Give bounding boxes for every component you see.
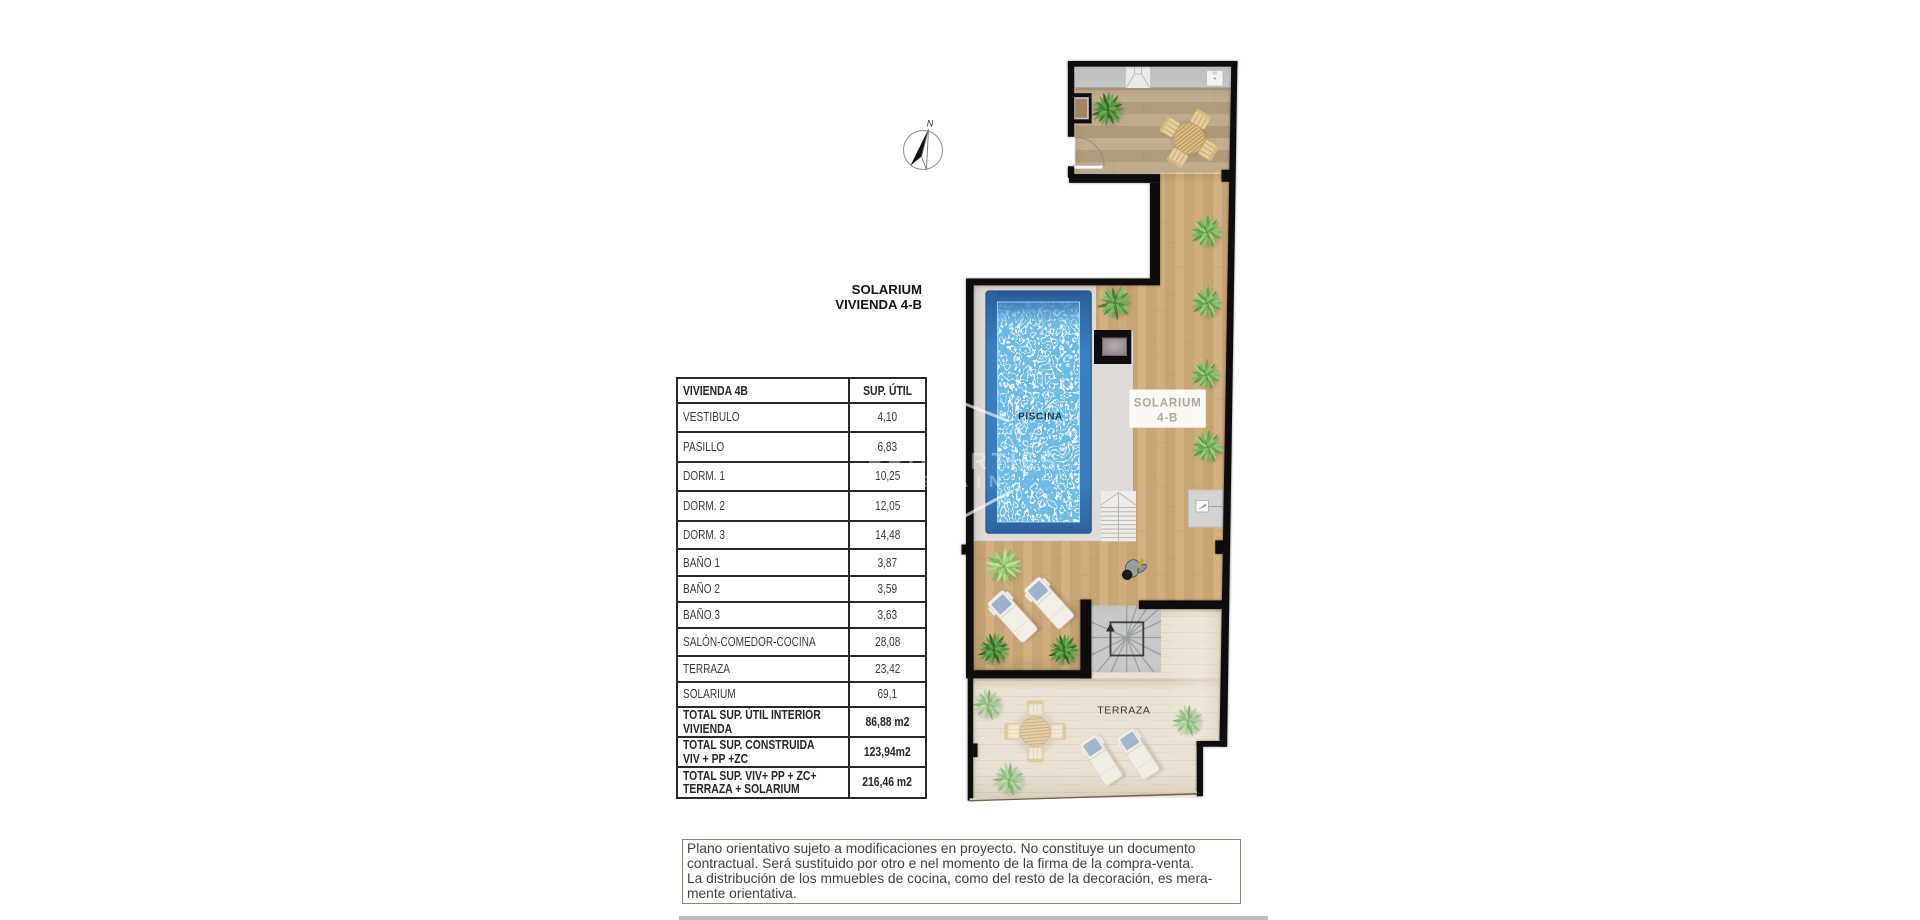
svg-text:PISCINA: PISCINA bbox=[1018, 412, 1063, 423]
svg-text:SPAIN: SPAIN bbox=[919, 472, 1010, 491]
svg-text:PROPERTIES: PROPERTIES bbox=[867, 448, 1060, 474]
svg-text:SOLARIUM: SOLARIUM bbox=[1134, 398, 1202, 410]
svg-text:4-B: 4-B bbox=[1157, 413, 1178, 425]
svg-text:N: N bbox=[927, 119, 934, 129]
svg-text:TERRAZA: TERRAZA bbox=[1097, 705, 1150, 717]
